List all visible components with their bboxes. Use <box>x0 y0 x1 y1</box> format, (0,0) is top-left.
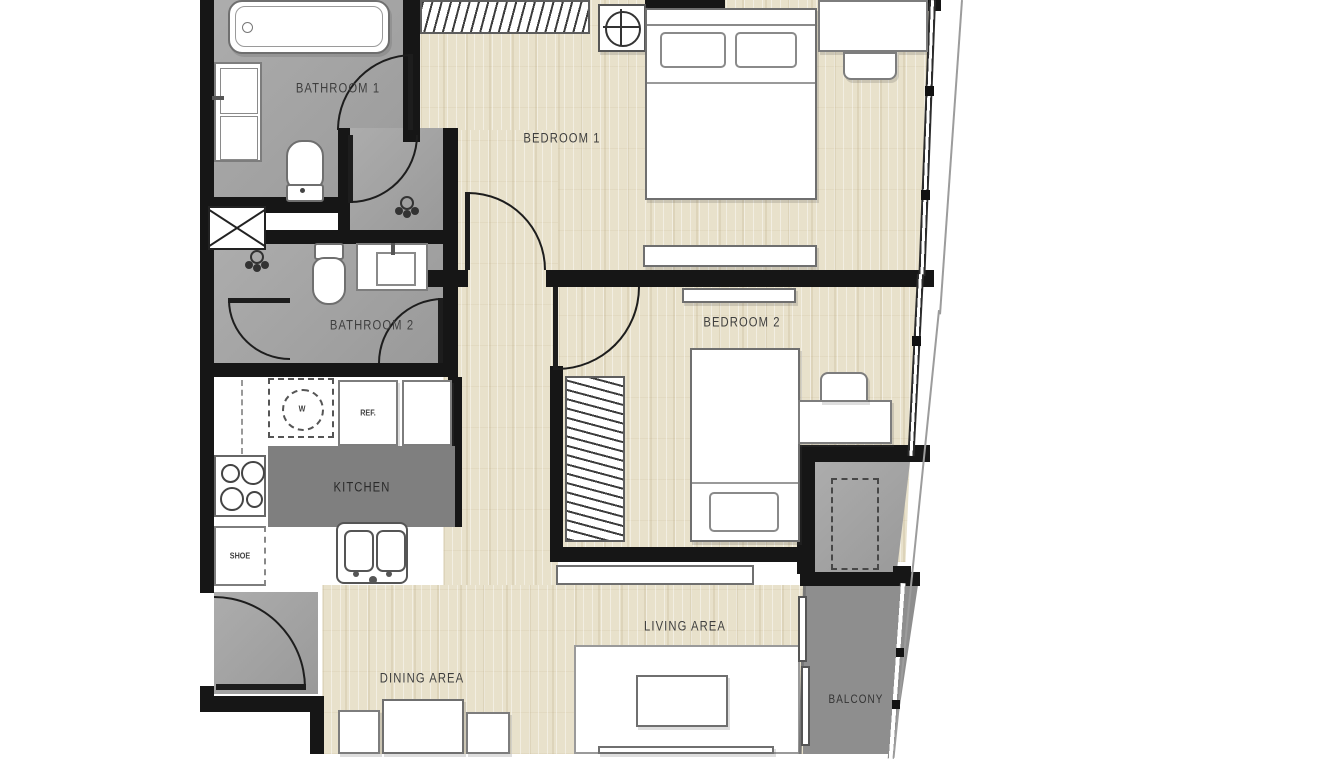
chair <box>820 372 868 402</box>
kitchen-cabinet <box>402 380 452 446</box>
toilet <box>310 243 348 305</box>
sliding-door-panel <box>801 666 810 746</box>
wall <box>550 366 563 562</box>
toilet-flush <box>300 188 305 193</box>
kitchen-island: KITCHEN <box>268 446 455 527</box>
toilet-tank <box>286 184 324 202</box>
condenser-unit <box>831 478 879 570</box>
sink-basin <box>220 116 258 160</box>
window-mullion <box>921 190 930 200</box>
double-bed <box>645 8 817 200</box>
burner <box>246 491 263 508</box>
dining-chair <box>338 710 380 754</box>
bedroom2-label: BEDROOM 2 <box>703 314 780 329</box>
toilet-bowl <box>286 140 324 190</box>
coffee-table <box>636 675 728 727</box>
burner <box>220 487 244 511</box>
floor-plan: W REF. KITCHEN SHOE <box>0 0 1342 754</box>
wall <box>546 270 934 287</box>
wall <box>200 696 322 712</box>
duct-shaft <box>208 206 266 250</box>
nightstand-lamp <box>598 4 646 52</box>
desk <box>798 400 892 444</box>
wall <box>443 128 458 244</box>
toilet <box>284 140 324 202</box>
burner <box>221 464 240 483</box>
wall <box>200 363 455 377</box>
counter-dash-line <box>241 380 243 454</box>
stove <box>214 455 266 517</box>
tv-console <box>556 565 754 585</box>
shoe-cabinet-label: SHOE <box>230 551 250 561</box>
refrigerator-label: REF. <box>360 408 376 418</box>
sink-drain <box>386 571 392 577</box>
sheet-fold <box>647 82 815 84</box>
sink-basin <box>220 68 258 114</box>
shower-symbol <box>400 196 414 210</box>
toilet-bowl <box>312 257 346 305</box>
door-leaf <box>348 135 353 203</box>
sheet-fold <box>692 482 798 484</box>
window-mullion <box>912 336 921 346</box>
door-leaf <box>228 298 290 303</box>
shoe-cabinet: SHOE <box>214 526 266 586</box>
kitchen-sink <box>336 522 408 584</box>
chair <box>843 52 897 80</box>
air-conditioner <box>682 288 796 303</box>
window-mullion <box>925 86 934 96</box>
lamp-cross <box>620 9 622 45</box>
wardrobe <box>565 376 625 542</box>
pillow <box>660 32 726 68</box>
sink-basin <box>376 530 406 572</box>
sink-basin <box>344 530 374 572</box>
desk <box>818 0 928 52</box>
entrance-door-leaf <box>216 684 306 690</box>
door-leaf <box>438 298 443 363</box>
bathtub <box>228 0 390 54</box>
bathroom1-label: BATHROOM 1 <box>296 80 380 95</box>
burner <box>241 461 265 485</box>
washer-label: W <box>299 404 306 414</box>
wall <box>310 696 324 754</box>
dining-table <box>382 699 464 754</box>
wall <box>200 0 214 593</box>
bathtub-inner <box>235 6 383 47</box>
washing-machine: W <box>268 378 334 438</box>
single-bed <box>690 348 800 542</box>
wall <box>443 244 458 377</box>
window-mullion <box>896 648 904 657</box>
living-area-label: LIVING AREA <box>644 618 726 633</box>
lamp-symbol <box>605 11 641 47</box>
sink-drain <box>353 571 359 577</box>
bench <box>643 245 817 267</box>
bathroom2-label: BATHROOM 2 <box>330 317 414 332</box>
balcony-label: BALCONY <box>829 694 884 707</box>
door-leaf <box>408 54 413 130</box>
wardrobe <box>420 0 590 34</box>
pillow <box>735 32 797 68</box>
building-edge <box>939 0 963 314</box>
bedroom1-label: BEDROOM 1 <box>523 130 600 145</box>
faucet <box>369 576 377 584</box>
sink-basin <box>376 252 416 286</box>
door-leaf <box>465 192 470 270</box>
kitchen-label: KITCHEN <box>333 479 390 494</box>
headboard <box>647 10 815 26</box>
sliding-door-panel <box>798 596 807 662</box>
pillow <box>709 492 779 532</box>
faucet <box>391 243 395 255</box>
faucet <box>212 96 224 100</box>
dining-area-label: DINING AREA <box>380 670 464 685</box>
sofa <box>598 746 774 754</box>
bathtub-drain <box>242 22 253 33</box>
refrigerator: REF. <box>338 380 398 446</box>
wall <box>550 547 815 562</box>
vanity-sink <box>356 243 428 291</box>
vanity-sink <box>214 62 262 162</box>
door-leaf <box>553 287 558 370</box>
shower-symbol <box>250 250 264 264</box>
window-mullion <box>892 700 900 709</box>
dining-chair <box>466 712 510 754</box>
wall <box>893 566 911 580</box>
